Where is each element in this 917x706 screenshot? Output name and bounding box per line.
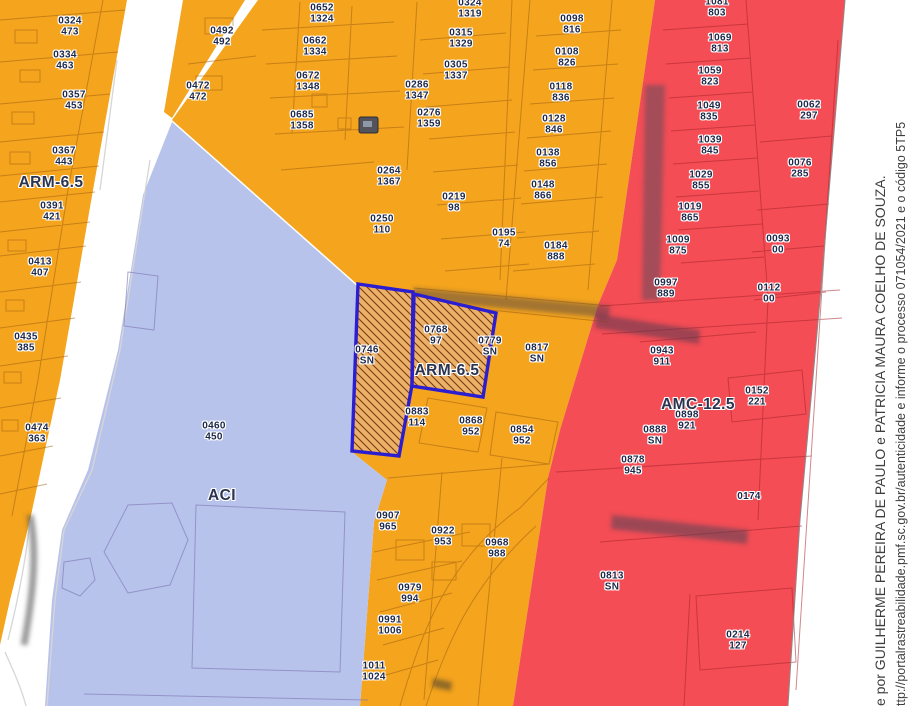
map-canvas[interactable]: 4830324473033446303574530367443039142104…	[0, 0, 917, 706]
basemap-svg	[0, 0, 917, 706]
selected-parcel-0746[interactable]	[352, 284, 413, 456]
watermark-url-text: ttp://portalrastreabilidade.pmf.sc.gov.b…	[894, 0, 908, 706]
selected-parcel-0768[interactable]	[412, 294, 496, 397]
poi-marker-icon	[359, 117, 378, 133]
watermark-signer-text: e por GUILHERME PEREIRA DE PAULO e PATRI…	[872, 0, 888, 706]
